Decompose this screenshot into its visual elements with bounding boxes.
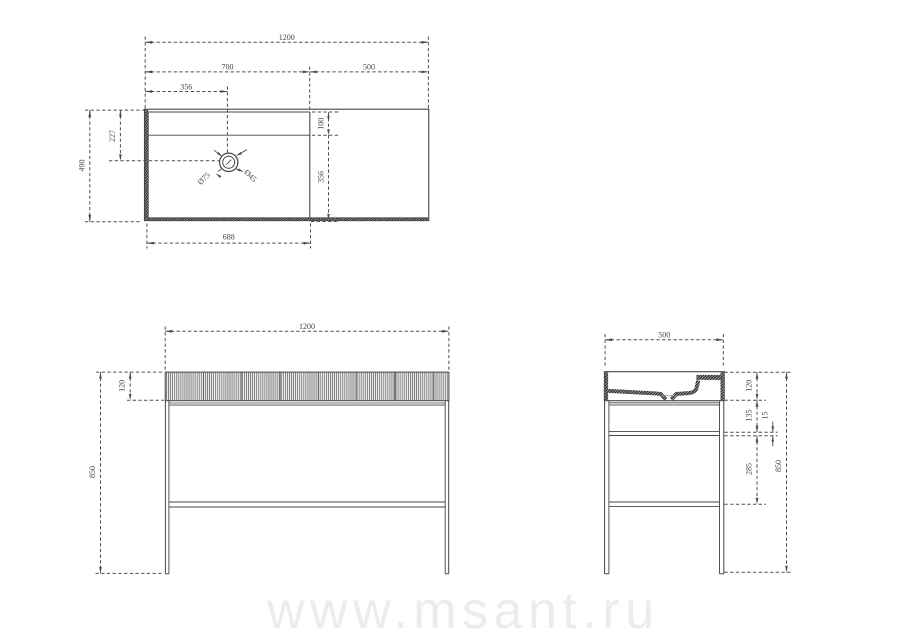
svg-text:100: 100	[316, 118, 325, 130]
svg-text:850: 850	[88, 466, 97, 478]
svg-text:120: 120	[745, 380, 754, 392]
svg-text:Ø75: Ø75	[196, 171, 212, 187]
svg-text:850: 850	[774, 460, 783, 472]
svg-text:688: 688	[223, 233, 235, 242]
svg-text:490: 490	[77, 160, 86, 172]
svg-text:15: 15	[761, 412, 770, 420]
svg-text:1200: 1200	[299, 322, 315, 331]
svg-text:356: 356	[180, 82, 192, 91]
svg-text:500: 500	[363, 63, 375, 72]
svg-text:135: 135	[745, 410, 754, 422]
svg-text:120: 120	[118, 380, 127, 392]
svg-text:Ø45: Ø45	[242, 168, 258, 184]
svg-text:500: 500	[658, 331, 670, 340]
svg-text:1200: 1200	[279, 33, 295, 42]
svg-text:356: 356	[316, 171, 325, 183]
svg-text:700: 700	[221, 63, 233, 72]
svg-text:285: 285	[745, 463, 754, 475]
svg-text:227: 227	[108, 130, 117, 142]
